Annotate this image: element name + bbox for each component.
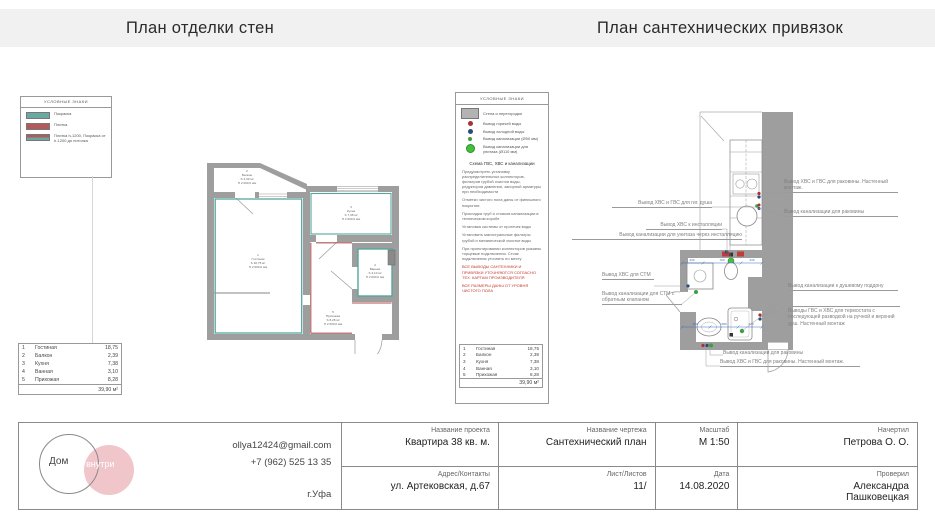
note: Установка системы от протечек воды: [462, 224, 542, 229]
callout-sink-bottom-water: Вывод ХВС и ГВС для раковины. Настенный …: [720, 359, 860, 367]
paint-swatch: [26, 112, 50, 119]
svg-text:680: 680: [721, 322, 726, 326]
callout-sink-top-water: Вывод ХВС и ГВС для раковины. Настенный …: [784, 179, 898, 193]
room-height: H 2 600,0 мм: [342, 217, 361, 221]
contact-city: г.Уфа: [307, 489, 331, 500]
svg-text:230: 230: [689, 258, 694, 262]
date-label: Дата: [664, 471, 730, 478]
sheet-value: 11/: [507, 481, 647, 493]
room-height: H 2 600,0 мм: [238, 181, 257, 185]
callout-sink-bottom-sewer: Вывод канализации для раковины: [723, 350, 835, 356]
callout-shower-sewer: Вывод канализации к душевому поддону: [788, 283, 898, 291]
project-value: Квартира 38 кв. м.: [350, 437, 490, 449]
address-label: Адрес/Контакты: [350, 471, 490, 478]
right-plan-title: План сантехнических привязок: [520, 9, 920, 47]
toilet-installation: [722, 251, 744, 280]
title-block-logo-cell: Дом внутри ollya12424@gmail.com +7 (962)…: [19, 423, 341, 509]
drawing-value: Сантехнический план: [507, 437, 647, 449]
drawing-sheet: План отделки стен План сантехнических пр…: [0, 0, 935, 525]
toilet: [725, 263, 738, 280]
finish-legend-box: УСЛОВНЫЕ ЗНАКИ Покраска Плитка Плитка h-…: [20, 96, 112, 178]
legend-item-tile: Плитка: [21, 119, 111, 130]
address-value: ул. Артековская, д.67: [350, 481, 490, 493]
legend-sewer110: Вывод канализации для унитаза (Ø110 мм): [456, 141, 548, 154]
kitchen-strip: [730, 140, 762, 245]
washing-machine: [686, 263, 713, 294]
wall-swatch: [461, 108, 479, 119]
mixed-swatch: [26, 134, 50, 141]
sewer110-dot: [466, 144, 475, 153]
title-block-scale-cell: Масштаб М 1:50 Дата 14.08.2020: [655, 423, 738, 509]
sheet-label: Лист/Листов: [507, 471, 647, 478]
callout-install-water: Вывод ХВС к инсталляции: [646, 222, 722, 230]
note: Отметки чистого пола даны от финишного п…: [462, 197, 542, 207]
callout-stm-sewer: Вывод канализации для СТМ с обратным кла…: [602, 291, 682, 305]
tile-swatch: [26, 123, 50, 130]
room-area-table: 1Гостиная18,75 2Балкон2,39 3Кухня7,38 4В…: [18, 343, 122, 395]
title-block-drawing-cell: Название чертежа Сантехнический план Лис…: [498, 423, 655, 509]
frame-guide-line: [92, 176, 93, 343]
note: Установить магистральные фильтры грубой …: [462, 232, 542, 242]
note-warning: ВСЕ РАЗМЕРЫ ДАНЫ ОТ УРОВНЯ ЧИСТОГО ПОЛА: [462, 283, 542, 293]
title-block: Дом внутри ollya12424@gmail.com +7 (962)…: [18, 422, 918, 510]
scheme-heading: Схема ГВС, ХВС и канализации: [460, 161, 544, 166]
drawing-label: Название чертежа: [507, 427, 647, 434]
svg-text:700: 700: [719, 258, 724, 262]
room-height: H 2 600,0 мм: [249, 265, 268, 269]
callout-install-sewer: Вывод канализации для унитаза через инст…: [572, 232, 742, 240]
note: При проектировании коллекторов указаны т…: [462, 246, 542, 262]
callout-sink-top-sewer: Вывод канализации для раковины: [784, 209, 898, 217]
project-label: Название проекта: [350, 427, 490, 434]
contact-phone: +7 (962) 525 13 35: [251, 457, 332, 468]
checker-value: Александра Пашковецкая: [799, 481, 909, 504]
date-value: 14.08.2020: [664, 481, 730, 493]
total-area: 39,90 м²: [460, 378, 543, 387]
author-label: Начертил: [746, 427, 909, 434]
room-height: H 2 600,0 мм: [324, 322, 343, 326]
cold-water-dot: [468, 129, 473, 134]
svg-text:230: 230: [749, 258, 754, 262]
legend-sewer50: Вывод канализации (Ø50 мм): [456, 134, 548, 142]
author-value: Петрова О. О.: [746, 437, 909, 449]
vent-shaft: [388, 250, 395, 265]
note: Предусмотреть установку распределительны…: [462, 169, 542, 195]
legend-item-paint: Покраска: [21, 108, 111, 119]
checker-label: Проверил: [746, 471, 909, 478]
legend-cold-water: Вывод холодной воды: [456, 126, 548, 134]
note-warning: ВСЕ ВЫВОДЫ САНТЕХНИКИ И ПРИВЯЗКИ УТОЧНЯЮ…: [462, 264, 542, 280]
scale-value: М 1:50: [664, 437, 730, 449]
finish-legend-title: УСЛОВНЫЕ ЗНАКИ: [21, 97, 111, 108]
room-area-table: 1Гостиная18,75 2Балкон2,39 3Кухня7,38 4В…: [459, 344, 543, 388]
title-block-project-cell: Название проекта Квартира 38 кв. м. Адре…: [341, 423, 498, 509]
callout-gig-shower: Вывод ХВС и ГВС для гиг. душа: [612, 200, 712, 208]
note: Прокладка труб и стояков канализации в т…: [462, 211, 542, 221]
legend-item-mixed: Плитка h-1200, Покраска от h-1200 до пот…: [21, 130, 111, 143]
total-area: 39,90 м²: [19, 385, 122, 395]
wall-finish-plan: 2 Балкон S 2,39 м² H 2 600,0 мм 1 Гостин…: [203, 158, 403, 354]
left-plan-title: План отделки стен: [35, 9, 365, 47]
callout-thermostat: Выводы ГВС и ХВС для термостата с послед…: [788, 306, 900, 327]
legend-wall: Стена и перегородки: [456, 105, 548, 119]
sewer50-dot: [468, 137, 472, 141]
plumb-legend-title: УСЛОВНЫЕ ЗНАКИ: [456, 93, 548, 105]
hot-water-dot: [468, 121, 473, 126]
scale-label: Масштаб: [664, 427, 730, 434]
contact-email: ollya12424@gmail.com: [232, 440, 331, 451]
kitchen-sink: [737, 206, 757, 226]
svg-text:350: 350: [692, 322, 697, 326]
room-height: H 2 600,0 мм: [366, 275, 385, 279]
callout-stm-water: Вывод ХВС для СТМ: [602, 272, 654, 280]
logo-word-vnutri: внутри: [86, 459, 114, 469]
title-block-people-cell: Начертил Петрова О. О. Проверил Александ…: [737, 423, 917, 509]
logo-word-dom: Дом: [49, 456, 68, 467]
legend-hot-water: Вывод горячей воды: [456, 119, 548, 127]
